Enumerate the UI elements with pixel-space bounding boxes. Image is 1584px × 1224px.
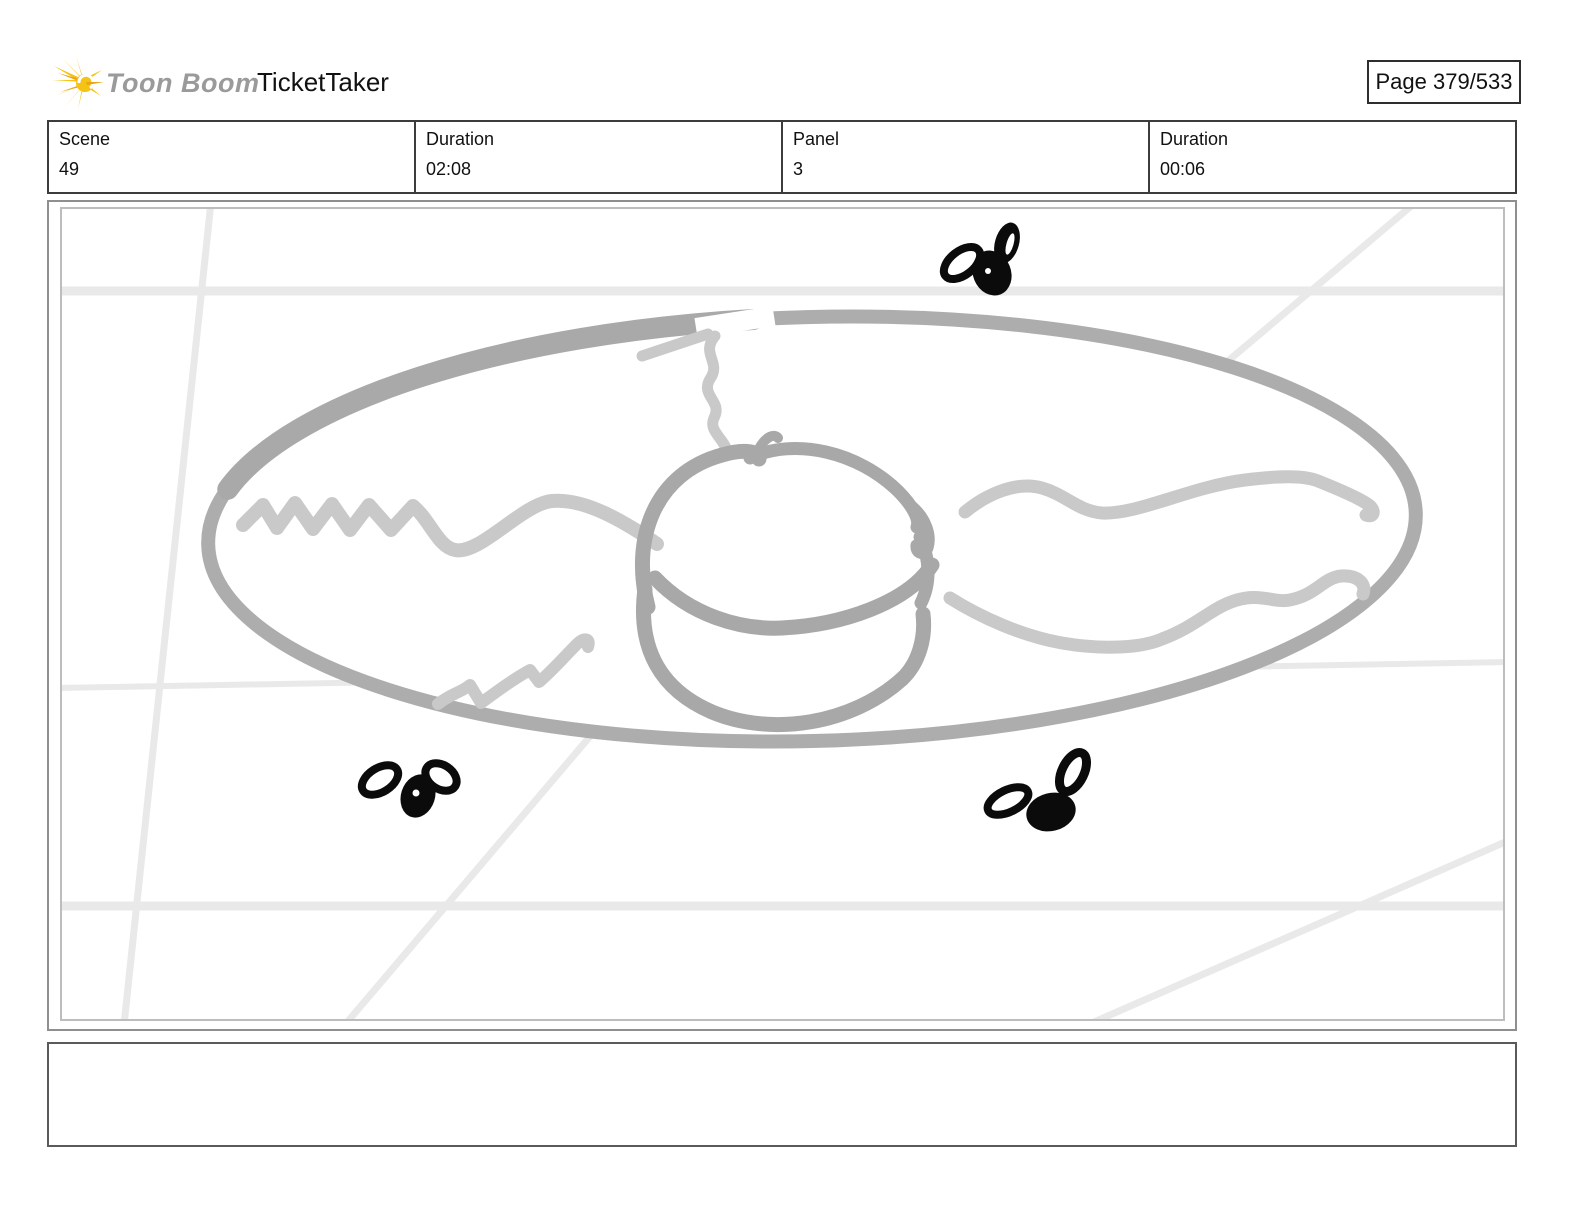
panel-label: Panel bbox=[793, 129, 1148, 150]
panel-duration-label: Duration bbox=[1160, 129, 1515, 150]
storyboard-sketch bbox=[60, 207, 1505, 1021]
scene-duration-cell: Duration 02:08 bbox=[414, 122, 781, 192]
panel-duration-cell: Duration 00:06 bbox=[1148, 122, 1515, 192]
page-header: Toon Boom TicketTaker Page 379/533 bbox=[0, 0, 1584, 118]
brand-name: Toon Boom bbox=[106, 68, 259, 99]
fly-icon bbox=[983, 748, 1092, 836]
scene-value: 49 bbox=[59, 159, 414, 180]
scene-duration-label: Duration bbox=[426, 129, 781, 150]
storyboard-page: Toon Boom TicketTaker Page 379/533 Scene… bbox=[0, 0, 1584, 1224]
page-number-box: Page 379/533 bbox=[1367, 60, 1521, 104]
project-title: TicketTaker bbox=[257, 67, 389, 98]
scene-duration-value: 02:08 bbox=[426, 159, 781, 180]
fly-icon bbox=[357, 758, 462, 823]
caption-box bbox=[47, 1042, 1517, 1147]
panel-duration-value: 00:06 bbox=[1160, 159, 1515, 180]
panel-cell: Panel 3 bbox=[781, 122, 1148, 192]
panel-frame bbox=[60, 207, 1505, 1021]
page-number-label: Page 379/533 bbox=[1375, 69, 1512, 95]
scene-cell: Scene 49 bbox=[49, 122, 414, 192]
toonboom-logo: Toon Boom bbox=[52, 56, 252, 110]
info-table: Scene 49 Duration 02:08 Panel 3 Duration… bbox=[47, 120, 1517, 194]
panel-value: 3 bbox=[793, 159, 1148, 180]
toonboom-starburst-logo-icon bbox=[52, 56, 104, 110]
scene-label: Scene bbox=[59, 129, 414, 150]
storyboard-panel bbox=[47, 200, 1517, 1031]
